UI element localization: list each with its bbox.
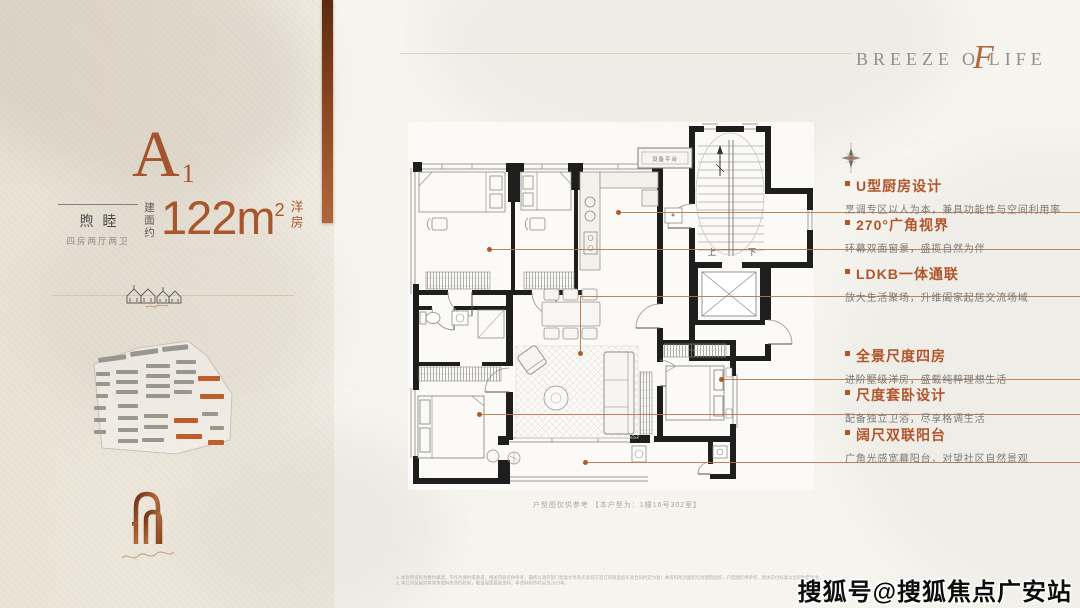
unit-code: A1 <box>132 122 195 189</box>
brand-rule-line <box>400 53 852 54</box>
brand-logo: BREEZE O F LIFE <box>856 36 1047 74</box>
brand-suffix: LIFE <box>989 49 1047 70</box>
unit-number: 1 <box>182 159 195 188</box>
unit-area-block: 建面约 122m2 洋房 <box>142 196 306 246</box>
feature-title: U型厨房设计 <box>845 176 1077 196</box>
disclaimer: 1. 本宣传资料为要约邀请，不作为要约或承诺，相关内容仅供参考，最终以政府部门批… <box>396 575 836 586</box>
plan-caption: 户型图仅供参考 【本户型为：1幢16号302室】 <box>402 500 832 510</box>
feature-item-suite: 尺度套卧设计 配备独立卫浴，尽享格调生活 <box>845 385 1077 425</box>
feature-desc: 环幕双面窗景，盛揽自然为伴 <box>845 240 1077 255</box>
arch-logo <box>116 486 180 572</box>
feature-item-view: 270°广角视界 环幕双面窗景，盛揽自然为伴 <box>845 215 1077 255</box>
site-plan <box>80 336 245 471</box>
brand-script-f: F <box>973 39 994 77</box>
feature-desc: 广角光感宽幕阳台，对望社区自然景观 <box>845 450 1077 465</box>
houses-illustration <box>124 276 190 310</box>
floor-plan: 设备平台 上 下 <box>402 106 832 506</box>
feature-title: 尺度套卧设计 <box>845 385 1077 405</box>
leader-dot <box>487 247 492 252</box>
leader-dot <box>477 412 482 417</box>
feature-title: LDKB一体通联 <box>845 264 1077 284</box>
leader-dot <box>719 377 724 382</box>
unit-layout: 四房两厅两卫 <box>58 235 138 247</box>
leader-dot <box>616 210 621 215</box>
feature-title: 阔尺双联阳台 <box>845 425 1077 445</box>
poster: A1 煦睦 四房两厅两卫 建面约 122m2 洋房 <box>0 0 1080 608</box>
unit-letter: A <box>132 118 180 191</box>
feature-desc: 进阶墅级洋房，盛载纯粹理想生活 <box>845 371 1077 386</box>
feature-desc: 烹调专区以人为本，兼具功能性与空间利用率 <box>845 201 1077 216</box>
leader-dot <box>578 351 583 356</box>
brand-prefix: BREEZE <box>856 49 954 70</box>
area-prefix: 建面约 <box>142 202 157 246</box>
feature-item-kitchen: U型厨房设计 烹调专区以人为本，兼具功能性与空间利用率 <box>845 176 1077 216</box>
feature-title: 270°广角视界 <box>845 215 1077 235</box>
leader-line-ldkb-vertical <box>580 296 581 353</box>
area-value: 122m2 <box>161 196 284 241</box>
feature-item-balcony: 阔尺双联阳台 广角光感宽幕阳台，对望社区自然景观 <box>845 425 1077 465</box>
unit-name: 煦睦 <box>58 211 138 231</box>
watermark: 搜狐号@搜狐焦点广安站 <box>798 572 1072 607</box>
equipment-platform-label: 设备平台 <box>652 155 678 163</box>
area-suffix: 洋房 <box>287 200 306 240</box>
copper-accent-bar <box>322 0 333 223</box>
feature-title: 全景尺度四房 <box>845 346 1077 366</box>
area-superscript: 2 <box>275 200 284 220</box>
unit-name-block: 煦睦 四房两厅两卫 <box>58 204 138 247</box>
feature-item-fourbed: 全景尺度四房 进阶墅级洋房，盛载纯粹理想生活 <box>845 346 1077 386</box>
feature-desc: 配备独立卫浴，尽享格调生活 <box>845 410 1077 425</box>
disclaimer-line2: 2. 本公司保留对本宣传资料修改的权利，敬请留意最新资料；本资料制作时间为202… <box>396 581 836 587</box>
feature-item-ldkb: LDKB一体通联 放大生活聚场，升维阖家起居交流场域 <box>845 264 1077 304</box>
compass-icon <box>836 142 866 174</box>
leader-dot <box>583 460 588 465</box>
feature-desc: 放大生活聚场，升维阖家起居交流场域 <box>845 289 1077 304</box>
